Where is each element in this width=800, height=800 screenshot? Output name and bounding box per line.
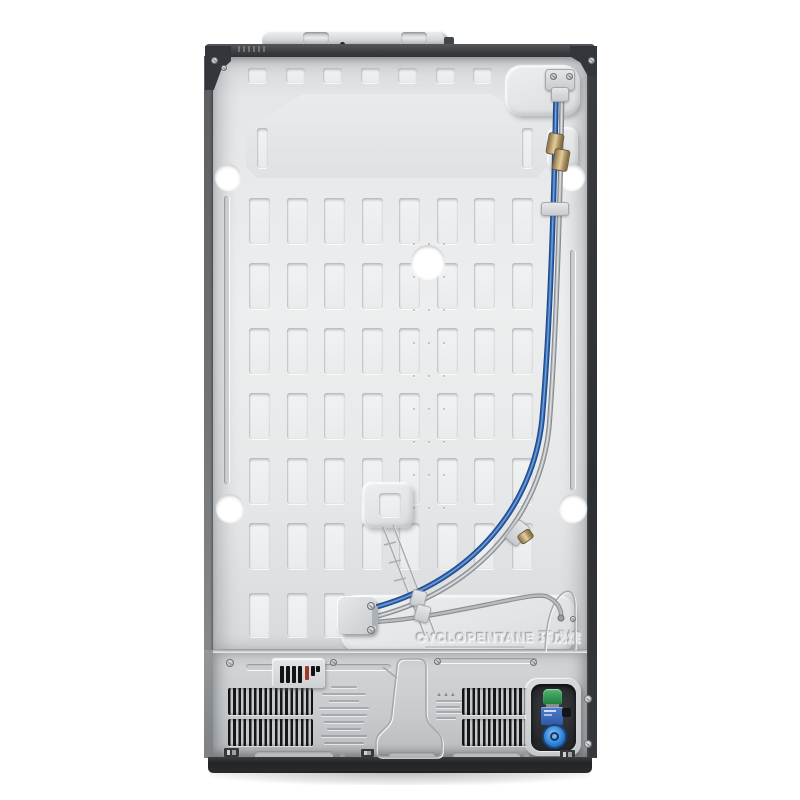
rivet-dot	[413, 507, 415, 509]
panel-slot	[249, 593, 270, 637]
rating-label-line	[322, 693, 366, 695]
rivet-dot	[428, 342, 430, 344]
panel-slot	[287, 523, 308, 569]
grille-slot-red	[305, 666, 309, 680]
rating-label-line	[321, 735, 367, 737]
panel-slot	[324, 263, 345, 309]
cyclopentane-emboss-text: CYCLOPENTANE 环戊烷	[416, 627, 581, 646]
panel-slot	[399, 393, 420, 439]
rating-label-line	[324, 721, 364, 723]
panel-slot	[362, 523, 383, 569]
panel-slot	[474, 328, 495, 374]
compartment-groove	[437, 658, 537, 663]
screw	[434, 658, 441, 665]
valve-nub	[562, 708, 571, 717]
panel-slot	[362, 263, 383, 309]
screw	[367, 602, 375, 610]
rivet-dot	[443, 342, 445, 344]
floor-shadow	[210, 771, 590, 785]
rivet-dot	[413, 276, 415, 278]
rivet-dot	[413, 441, 415, 443]
top-slot	[436, 68, 455, 83]
screw	[570, 616, 576, 622]
right-vent-upper	[462, 688, 533, 715]
valve-label-mark	[544, 710, 556, 712]
panel-slot	[324, 458, 345, 504]
rivet-dot	[443, 441, 445, 443]
panel-slot	[287, 263, 308, 309]
panel-slot	[474, 263, 495, 309]
screw	[226, 659, 234, 667]
panel-slot	[512, 393, 533, 439]
screw	[584, 695, 592, 703]
panel-slot	[474, 198, 495, 244]
grille-slot	[316, 666, 320, 672]
panel-slot	[474, 523, 495, 569]
rivet-dot	[413, 408, 415, 410]
warning-label-line	[436, 717, 456, 719]
rivet-dot	[413, 243, 415, 245]
tube-outlet-clip-tab	[551, 87, 569, 102]
rating-label-line	[324, 742, 364, 744]
panel-slot	[399, 523, 420, 569]
warning-label-line	[436, 706, 460, 708]
panel-slot	[287, 328, 308, 374]
rivet-dot	[428, 441, 430, 443]
warning-label-line	[436, 700, 462, 702]
rivet-dot	[443, 276, 445, 278]
power-inlet-grille	[273, 659, 325, 688]
screw	[221, 65, 227, 71]
valve-blue-label	[541, 707, 563, 725]
panel-slot	[437, 523, 458, 569]
rivet-dot	[428, 408, 430, 410]
rivet-dot	[428, 309, 430, 311]
rivet-dot	[428, 474, 430, 476]
panel-slot	[512, 458, 533, 504]
panel-slot	[249, 458, 270, 504]
top-slot	[286, 68, 305, 83]
rivet-dot	[443, 408, 445, 410]
mounting-hole	[215, 164, 241, 190]
rivet-dot	[413, 474, 415, 476]
panel-slot	[324, 393, 345, 439]
trapezoid-inner-slot	[522, 128, 533, 168]
rating-label-line	[327, 728, 361, 730]
panel-slot	[324, 198, 345, 244]
panel-slot	[512, 263, 533, 309]
valve-blue-cap-ring	[550, 732, 559, 741]
rivet-dot	[413, 342, 415, 344]
mounting-hole	[216, 494, 244, 522]
panel-slot	[249, 263, 270, 309]
panel-slot	[324, 328, 345, 374]
warning-triangle-icon: ▲▲▲	[436, 692, 464, 698]
screw	[550, 73, 557, 80]
panel-slot	[324, 523, 345, 569]
panel-slot	[249, 198, 270, 244]
grille-slot	[286, 666, 290, 683]
screw	[588, 57, 595, 64]
panel-slot	[362, 393, 383, 439]
screw	[367, 626, 375, 634]
valve-green-cap	[543, 689, 562, 705]
screw	[330, 659, 337, 666]
right-vent-lower	[462, 719, 533, 746]
screw	[211, 57, 218, 64]
valve-label-mark	[544, 714, 552, 716]
panel-slot	[249, 328, 270, 374]
panel-slot	[437, 458, 458, 504]
grille-slot	[311, 666, 315, 676]
panel-slot	[474, 393, 495, 439]
panel-slot	[437, 393, 458, 439]
screw	[584, 740, 592, 748]
rivet-dot	[443, 243, 445, 245]
panel-slot	[249, 393, 270, 439]
panel-slot	[399, 198, 420, 244]
bottom-sticker	[361, 749, 374, 757]
rivet-dot	[443, 507, 445, 509]
warning-label-emboss: ▲▲▲	[436, 692, 464, 726]
rating-label-emboss	[318, 686, 370, 748]
bottom-sticker	[224, 748, 239, 757]
panel-slot	[437, 198, 458, 244]
rivet-dot	[443, 474, 445, 476]
rivet-dot	[413, 375, 415, 377]
rivet-dot	[428, 507, 430, 509]
panel-slot	[287, 198, 308, 244]
left-stiffener-groove	[224, 196, 229, 484]
mounting-hole	[411, 245, 445, 279]
rivet-dot	[443, 375, 445, 377]
rating-label-line	[321, 714, 367, 716]
left-vent-lower	[228, 719, 313, 746]
panel-slot	[474, 458, 495, 504]
top-slot	[323, 68, 342, 83]
grille-slot	[292, 666, 296, 683]
top-slot	[248, 68, 267, 83]
rating-label-line	[319, 707, 369, 709]
valve-blue-cap	[542, 724, 567, 749]
grille-slot	[280, 666, 284, 683]
panel-slot	[512, 328, 533, 374]
panel-slot	[399, 328, 420, 374]
refrigerator-back-photo: CYCLOPENTANE 环戊烷 ▲▲▲	[0, 0, 800, 800]
panel-slot	[249, 523, 270, 569]
trapezoid-inner-slot	[257, 128, 268, 168]
rivet-dot	[443, 309, 445, 311]
right-edge	[586, 56, 597, 758]
tiny-emboss-text-line	[425, 646, 525, 648]
panel-slot	[287, 458, 308, 504]
panel-slot	[287, 393, 308, 439]
tube-clip	[541, 202, 569, 216]
screw	[566, 73, 573, 80]
top-slot	[398, 68, 417, 83]
panel-slot	[437, 328, 458, 374]
rating-label-line	[331, 686, 357, 688]
rating-label-line	[329, 700, 359, 702]
rivet-dot	[413, 309, 415, 311]
mounting-hole	[559, 494, 587, 522]
warning-label-line	[436, 711, 462, 713]
center-square-slot	[379, 493, 401, 517]
panel-slot	[512, 198, 533, 244]
panel-slot	[362, 328, 383, 374]
rivet-dot	[428, 375, 430, 377]
panel-slot	[362, 198, 383, 244]
upper-stiffener-emboss	[246, 94, 547, 178]
panel-slot	[287, 593, 308, 637]
screw	[530, 659, 537, 666]
top-slot	[473, 68, 492, 83]
left-vent-upper	[228, 688, 313, 715]
top-slot	[361, 68, 380, 83]
right-stiffener-groove	[570, 250, 575, 490]
grille-slot	[298, 666, 302, 683]
top-cap-ticks	[238, 46, 265, 52]
